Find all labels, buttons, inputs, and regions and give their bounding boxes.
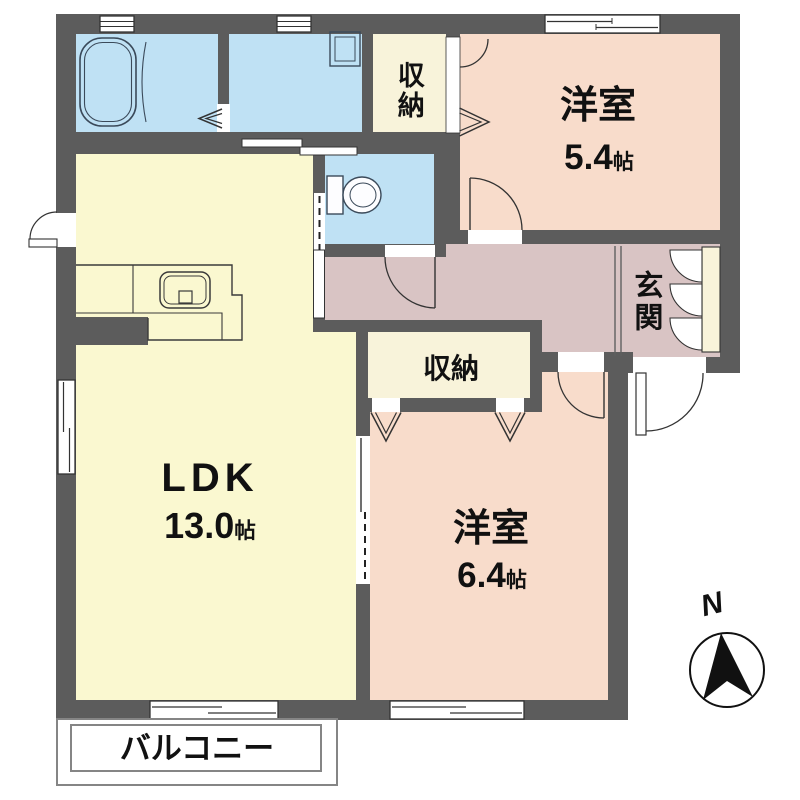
wall-mid-horizontal (76, 132, 460, 154)
entrance-label: 玄関 (629, 262, 661, 342)
compass-north-label: N (687, 583, 738, 626)
bedroom-small-label: 洋室 (538, 86, 658, 128)
room-bedroom-small (460, 34, 720, 230)
room-washroom (229, 34, 362, 132)
wall-toilet-right (434, 154, 446, 245)
wall-right-lower (608, 357, 628, 720)
room-toilet (325, 154, 434, 245)
wall-bedroom-large-door (542, 352, 633, 372)
bedroom-large-size-label: 6.4帖 (427, 557, 557, 596)
bedroom-small-size-label: 5.4帖 (534, 139, 664, 178)
hallway-left (325, 257, 446, 320)
wall-closet-middle-bottom (356, 398, 542, 412)
wall-bedroom-small-south (446, 230, 740, 244)
wall-ldk-hall (313, 154, 325, 332)
ldk-size-label: 13.0帖 (135, 506, 285, 546)
wall-ldk-bedroom-large (356, 412, 370, 700)
wall-left (56, 14, 76, 720)
wall-bottom (56, 700, 628, 720)
room-ldk-extension (313, 332, 356, 700)
wall-closet-bedroom-small (446, 34, 460, 244)
ldk-label: LDK (145, 456, 275, 500)
wall-entrance-south (628, 357, 740, 373)
wall-closet-middle-top (313, 320, 542, 332)
wall-toilet-south (313, 244, 446, 257)
compass-north-arrow (690, 633, 764, 707)
wall-top (56, 14, 740, 34)
closet-middle-label: 収納 (409, 354, 493, 385)
wall-washroom-closet (362, 34, 373, 132)
room-bathroom (76, 34, 218, 132)
bedroom-large-label: 洋室 (431, 509, 551, 551)
wall-right-upper (720, 14, 740, 373)
hallway-right-entrance (446, 244, 720, 320)
wall-bath-divider (218, 34, 229, 104)
floor-plan-page: { "plan": { "rooms": { "ldk": {"name": "… (0, 0, 800, 800)
room-ldk (76, 154, 313, 700)
balcony-label: バルコニー (92, 732, 302, 766)
closet-top-label: 収納 (393, 57, 423, 125)
wall-kitchen-stub (56, 317, 148, 345)
